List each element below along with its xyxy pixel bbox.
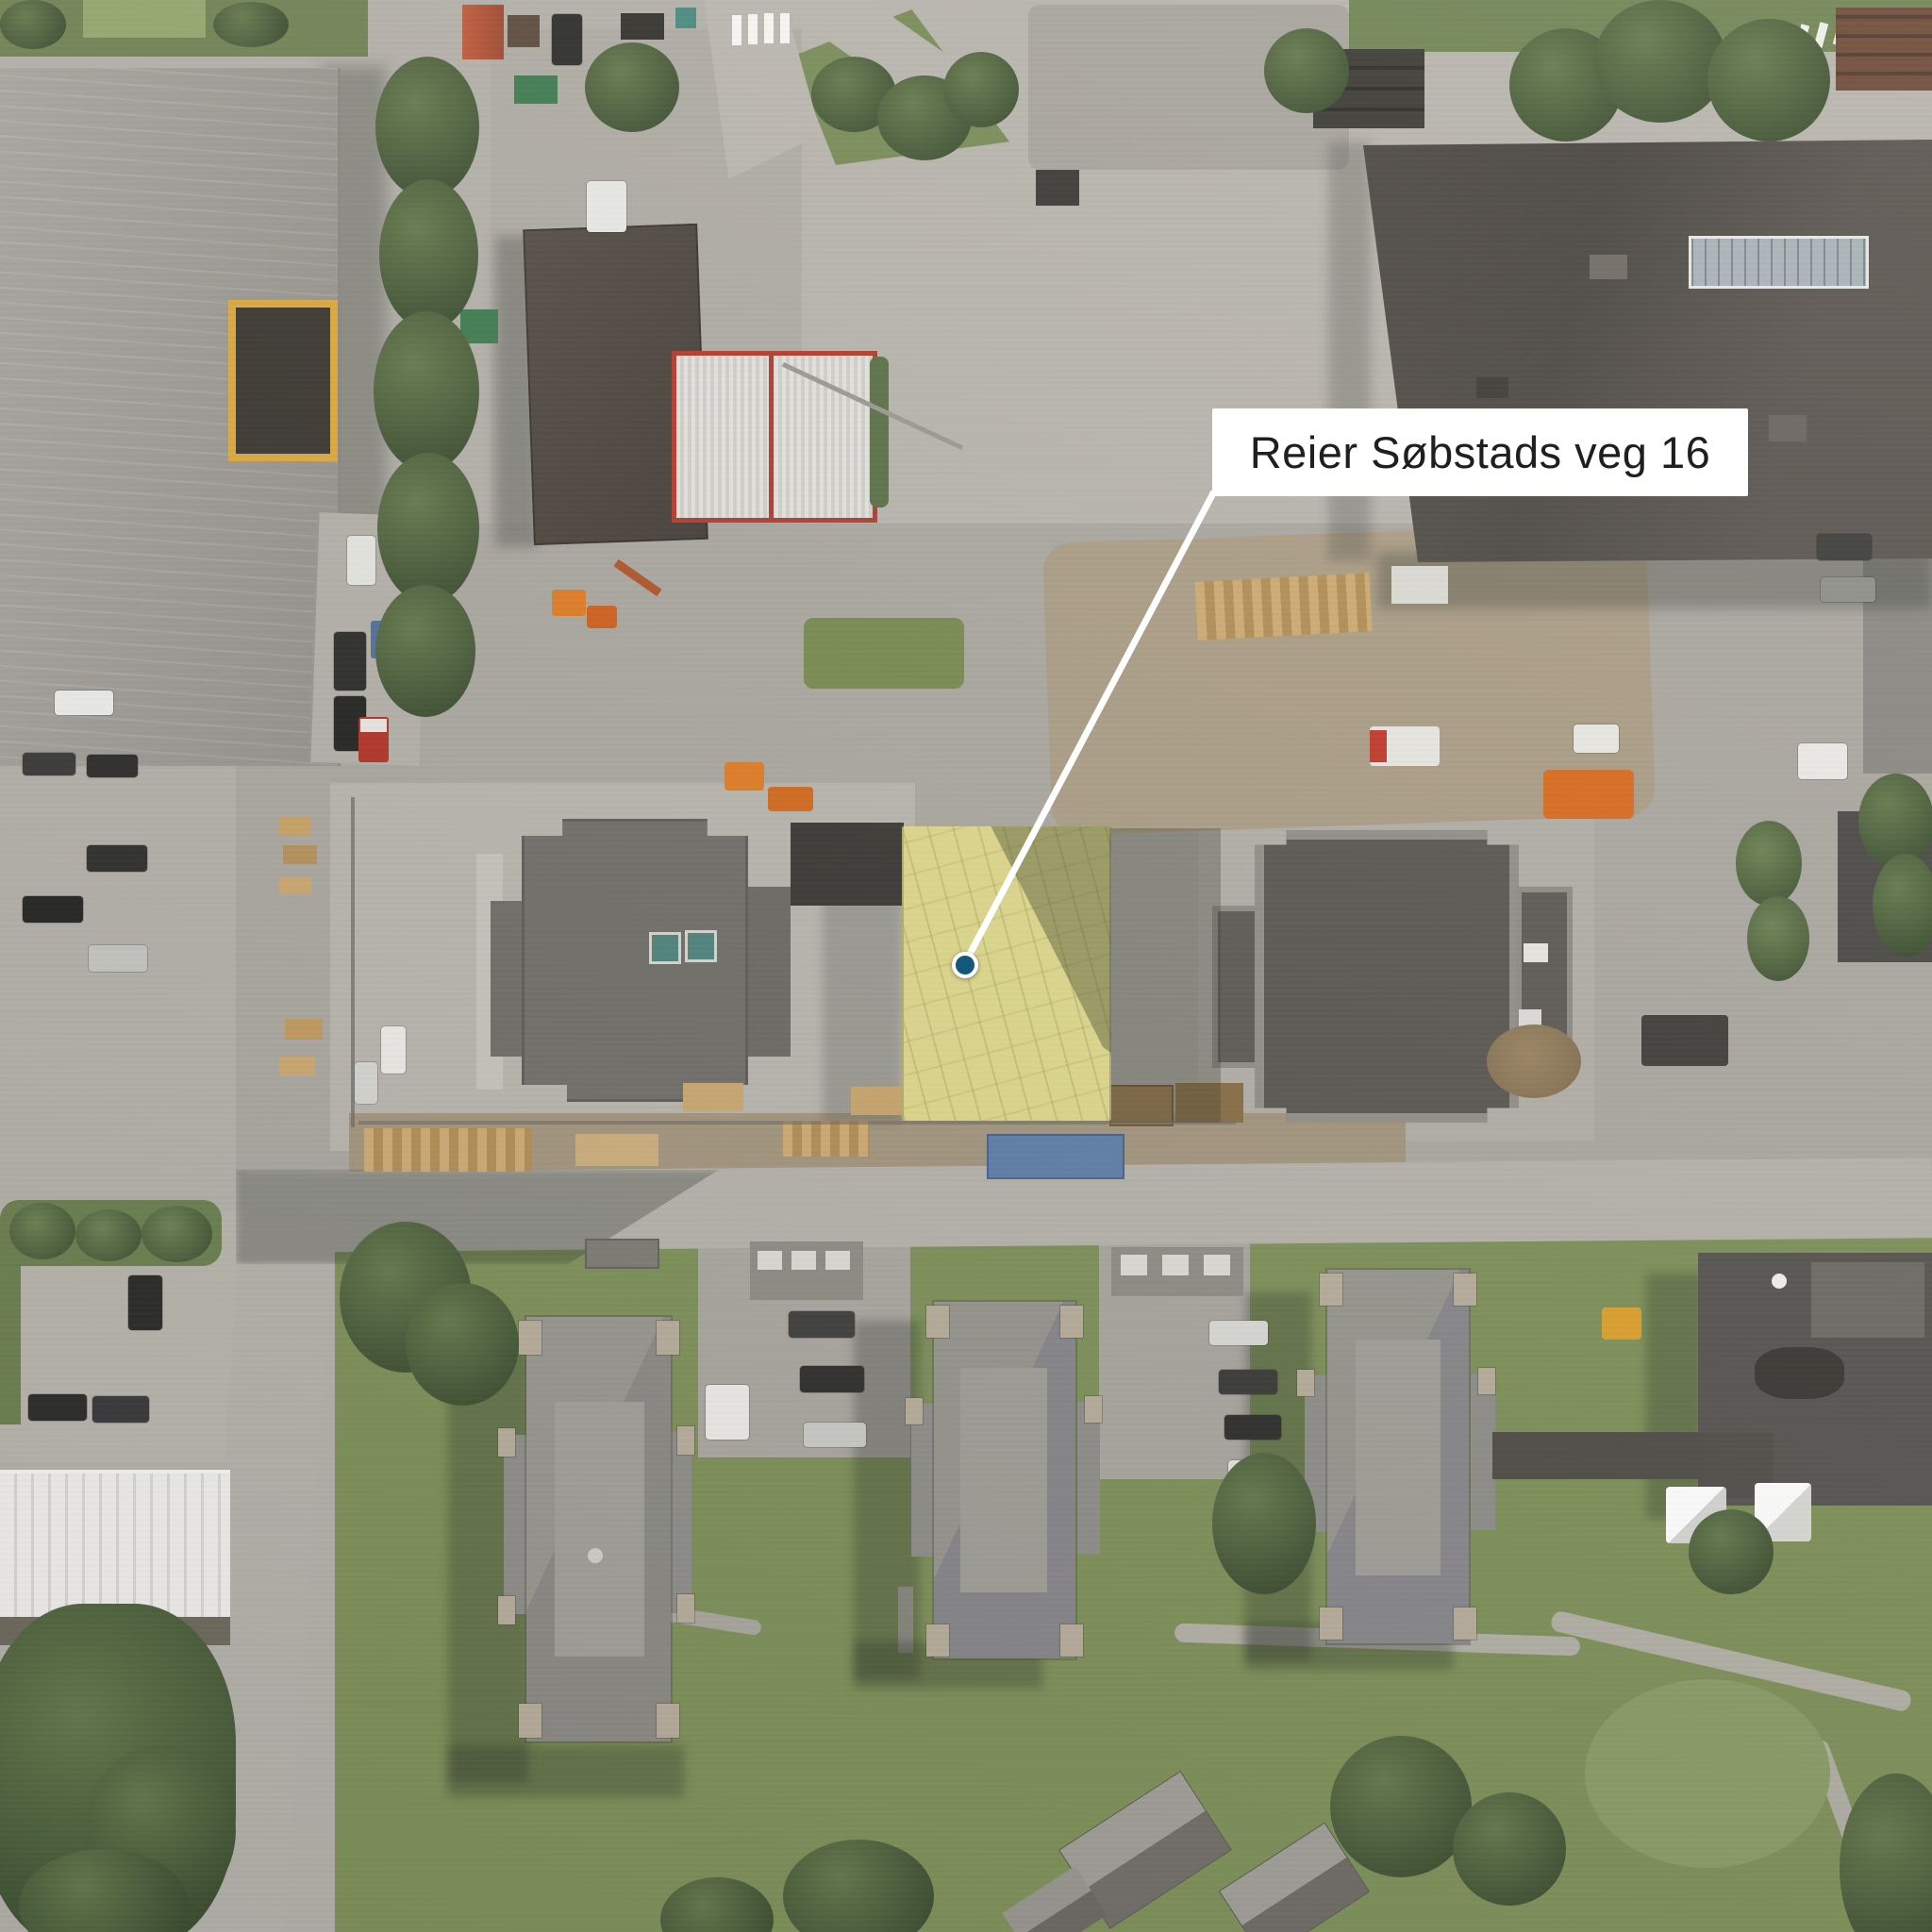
main-roof [1255, 830, 1519, 1123]
apartment-building-3 [1297, 1270, 1495, 1647]
roof-material [1524, 943, 1548, 962]
roof-upper [1811, 1262, 1924, 1338]
balcony-block [926, 1306, 949, 1338]
roof-hatch [1755, 1347, 1844, 1399]
building-shadow [1646, 1274, 1703, 1519]
apartment-building-1 [498, 1317, 694, 1743]
lumber-pile [683, 1083, 743, 1111]
pallet [285, 1019, 323, 1040]
skylight-row [1689, 236, 1869, 289]
car [1224, 1415, 1281, 1440]
upper-roof [960, 1368, 1047, 1592]
tree [1873, 854, 1932, 958]
white-roof-building [672, 351, 877, 523]
hedge-trees [377, 453, 479, 604]
white-warehouse [0, 1470, 230, 1621]
car [334, 632, 366, 691]
fence [358, 1121, 1236, 1124]
lumber-pile [575, 1134, 658, 1166]
pallet [283, 845, 317, 864]
building-southeast [1698, 1253, 1932, 1506]
dumpster [621, 13, 664, 40]
truck-cab [1370, 730, 1387, 762]
roof-vent [1590, 255, 1627, 279]
covered-walkway [1492, 1432, 1705, 1479]
car [804, 1423, 866, 1447]
crosswalk-stripe [732, 15, 741, 45]
dirt-mound [1487, 1024, 1581, 1098]
tree [1264, 28, 1349, 113]
tree [1594, 0, 1726, 123]
car [55, 691, 113, 715]
tree [585, 42, 679, 132]
orange-machine [552, 590, 586, 616]
balcony-block [1454, 1274, 1476, 1306]
balcony-block [1085, 1396, 1102, 1423]
bush-row [1736, 821, 1802, 906]
balcony-block [906, 1398, 923, 1424]
tree [1453, 1792, 1566, 1906]
roof-shading [1335, 132, 1932, 566]
yellow-framed-building [228, 300, 338, 461]
carport-panel [1162, 1255, 1189, 1275]
balcony-block [657, 1321, 679, 1355]
lawn-mound [1585, 1679, 1830, 1868]
upper-roof [555, 1402, 644, 1657]
tree [1689, 1509, 1774, 1594]
tarp-east-shadow [1109, 828, 1221, 1123]
side-bump [911, 1404, 936, 1557]
balcony-block [657, 1704, 679, 1738]
teal-dumpster [675, 8, 696, 28]
balcony-block [1060, 1306, 1083, 1338]
hedge-trees [375, 57, 479, 198]
carport [1111, 1247, 1243, 1296]
orange-machine [587, 606, 617, 628]
carport-panel [825, 1251, 850, 1270]
carport [750, 1241, 863, 1300]
hedge-trees [375, 585, 475, 717]
red-truck [358, 717, 389, 762]
green-dumpster [514, 75, 558, 104]
orange-machine [724, 762, 764, 791]
bush [9, 1203, 75, 1259]
balcony-block [677, 1426, 694, 1455]
balcony-block [498, 1428, 515, 1457]
right-edge-shade [1863, 528, 1932, 774]
car [87, 755, 138, 777]
truck [1370, 726, 1440, 766]
tree [213, 2, 289, 47]
pallet [279, 817, 311, 836]
small-shed [1036, 170, 1079, 206]
lumber-pile [1195, 573, 1373, 641]
roof-vent [1476, 377, 1508, 398]
pallet [279, 1057, 315, 1075]
balcony-block [1478, 1368, 1495, 1394]
brown-shed [508, 15, 540, 47]
carport-panel [1121, 1255, 1147, 1275]
address-label-text: Reier Søbstads veg 16 [1250, 426, 1711, 478]
balcony-block [519, 1704, 541, 1738]
pallet [279, 877, 311, 894]
balcony-block [677, 1594, 694, 1623]
upper-roof [1356, 1340, 1441, 1575]
car [789, 1311, 855, 1338]
crosswalk-stripe [764, 13, 774, 43]
satellite-dish [1772, 1274, 1787, 1289]
car [1817, 534, 1872, 560]
balcony-block [926, 1624, 949, 1657]
tree [1330, 1736, 1472, 1877]
east-wing [748, 887, 791, 1057]
tree [1212, 1453, 1316, 1594]
car [706, 1385, 749, 1440]
tree [1707, 19, 1830, 142]
car [23, 753, 75, 775]
hedge-trees [374, 311, 479, 472]
car [1821, 577, 1875, 602]
roof-vent [1769, 415, 1807, 441]
car [552, 14, 582, 65]
side-bump [504, 1435, 528, 1614]
roof-divider [769, 356, 774, 518]
balcony-block [1297, 1370, 1314, 1396]
blue-container [987, 1134, 1124, 1179]
roof-detail [588, 1548, 603, 1563]
industrial-building [1335, 132, 1932, 566]
construction-building-west [476, 811, 797, 1113]
aerial-map[interactable]: Reier Søbstads veg 16 [0, 0, 1932, 1932]
apt1-shadow [448, 1745, 684, 1797]
tree [1858, 774, 1932, 868]
trash-shed [585, 1239, 659, 1269]
skylight [685, 930, 717, 962]
hedge-strip [870, 357, 889, 508]
car [92, 1396, 149, 1423]
car [89, 945, 147, 972]
tree [0, 0, 66, 49]
location-marker [952, 952, 978, 978]
container-stack [1836, 8, 1932, 91]
side-bump [671, 1432, 691, 1613]
car [28, 1394, 87, 1421]
fence [351, 797, 355, 1127]
yellow-tarp [902, 826, 1111, 1121]
van [1798, 743, 1847, 779]
machinery [1641, 1015, 1728, 1066]
lawn-top-left [83, 0, 206, 38]
tree [943, 52, 1019, 127]
orange-excavator [1543, 770, 1634, 819]
bush [142, 1206, 212, 1262]
apartment-building-2 [906, 1302, 1104, 1662]
carport-panel [1204, 1255, 1230, 1275]
crosswalk-stripe [780, 13, 790, 43]
orange-machine [768, 787, 813, 811]
tree [406, 1283, 519, 1406]
car [347, 536, 375, 585]
balcony-block [1320, 1607, 1342, 1640]
hedge-trees [379, 179, 478, 330]
bush-row [1747, 896, 1809, 981]
van [381, 1026, 406, 1074]
car [587, 181, 626, 232]
crosswalk-stripe [748, 14, 758, 44]
lumber-pile [783, 1121, 870, 1157]
balcony-block [1060, 1624, 1083, 1657]
balcony-block [1454, 1607, 1476, 1640]
car [23, 896, 83, 923]
material-stack [1391, 566, 1448, 604]
excavator [1602, 1307, 1641, 1340]
building-shadow [1328, 142, 1371, 561]
truck-cab [360, 719, 387, 732]
pickup [1574, 724, 1619, 753]
car [1209, 1321, 1268, 1345]
car [800, 1366, 864, 1392]
dark-storage-area [791, 823, 904, 906]
address-label: Reier Søbstads veg 16 [1212, 408, 1748, 496]
balcony-block [498, 1596, 515, 1624]
balcony-block [519, 1321, 541, 1355]
carport-panel [758, 1251, 782, 1270]
lumber-pile [364, 1128, 532, 1172]
bush [75, 1209, 142, 1261]
car [355, 1062, 377, 1104]
skylight [649, 932, 681, 964]
car [1219, 1370, 1277, 1394]
car [87, 845, 147, 872]
red-roof-shed [462, 5, 504, 59]
side-bump [1077, 1402, 1100, 1555]
grass-station [804, 618, 964, 689]
car [128, 1275, 162, 1330]
balcony-block [1320, 1274, 1342, 1306]
carport-panel [791, 1251, 816, 1270]
